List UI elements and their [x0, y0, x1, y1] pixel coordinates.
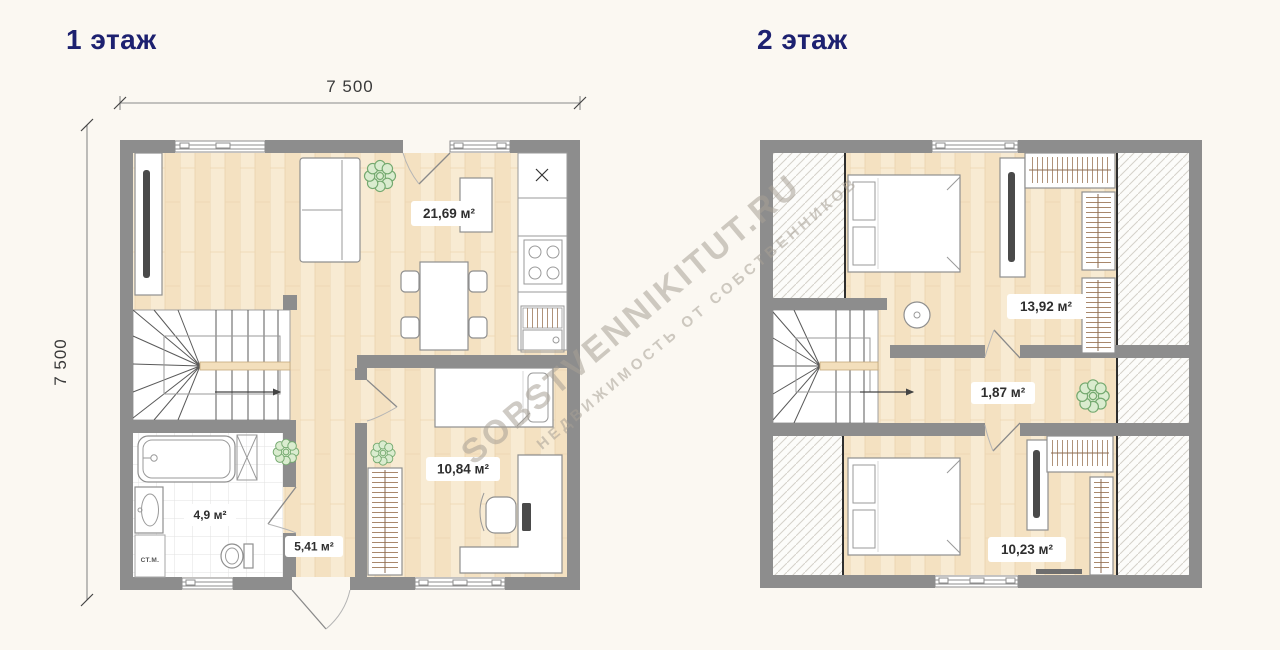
window-bedroom-bottom: [935, 576, 1018, 587]
area-label-bedroom-top: 13,92 м²: [1007, 294, 1085, 319]
window-bedroom: [415, 578, 505, 589]
window-living: [175, 141, 265, 152]
plant-icon: [1077, 380, 1109, 412]
wall-stub: [283, 295, 297, 310]
floor1-plan: СТ.М.: [120, 140, 580, 629]
toilet-icon: [221, 544, 253, 568]
floorplan-page: 1 этаж 2 этаж: [0, 0, 1280, 650]
monitor-icon: [522, 503, 531, 531]
svg-text:10,23 м²: 10,23 м²: [1001, 542, 1054, 557]
area-label-living: 21,69 м²: [411, 201, 487, 226]
bathtub-icon: [138, 436, 235, 482]
kitchen-counter: [518, 153, 567, 352]
svg-text:4,9 м²: 4,9 м²: [194, 508, 227, 522]
area-label-bedroom-bottom: 10,23 м²: [988, 537, 1066, 562]
threshold: [1036, 569, 1082, 574]
area-label-hallway: 5,41 м²: [285, 536, 343, 557]
plant-icon: [364, 160, 395, 191]
dimension-left-value: 7 500: [51, 338, 70, 386]
tv-icon: [135, 153, 162, 295]
area-label-bedroom: 10,84 м²: [426, 457, 500, 481]
pouf-icon: [904, 302, 930, 328]
svg-text:13,92 м²: 13,92 м²: [1020, 299, 1073, 314]
washing-machine-box: СТ.М.: [135, 535, 165, 577]
area-label-bathroom: 4,9 м²: [184, 504, 236, 526]
dimension-left: 7 500: [51, 119, 93, 606]
plans-svg: 7 500 7 500: [0, 0, 1280, 650]
floor2-plan: 13,92 м² 1,87 м² 10,23 м²: [760, 140, 1202, 588]
attic-hatch: [1117, 153, 1189, 575]
bed-icon: [848, 175, 960, 272]
window-kitchen: [450, 141, 510, 152]
sofa-icon: [300, 158, 360, 262]
tv-icon: [1000, 158, 1025, 277]
entrance-door: [292, 590, 350, 629]
svg-text:5,41 м²: 5,41 м²: [294, 540, 334, 554]
window-bathroom: [182, 578, 233, 589]
washing-machine-label: СТ.М.: [141, 557, 160, 564]
bed-icon: [435, 368, 553, 427]
wardrobe-icon: [1090, 477, 1113, 575]
closet-icon: [1025, 153, 1115, 188]
closet-icon: [1047, 436, 1113, 472]
bed-icon: [848, 458, 960, 555]
plant-icon: [371, 441, 395, 465]
stairs-icon: [133, 310, 290, 420]
area-label-hall: 1,87 м²: [971, 382, 1035, 404]
wardrobe-icon: [368, 468, 402, 575]
tv-icon: [1027, 440, 1048, 530]
attic-hatch: [773, 153, 845, 298]
plant-icon: [273, 439, 299, 465]
window-bedroom-top: [932, 141, 1018, 152]
dimension-top: 7 500: [114, 77, 586, 110]
attic-hatch: [773, 436, 843, 575]
svg-text:10,84 м²: 10,84 м²: [437, 462, 490, 477]
washbasin-icon: [135, 487, 163, 533]
svg-text:21,69 м²: 21,69 м²: [423, 206, 476, 221]
dimension-top-value: 7 500: [326, 77, 374, 96]
svg-text:1,87 м²: 1,87 м²: [981, 385, 1026, 400]
